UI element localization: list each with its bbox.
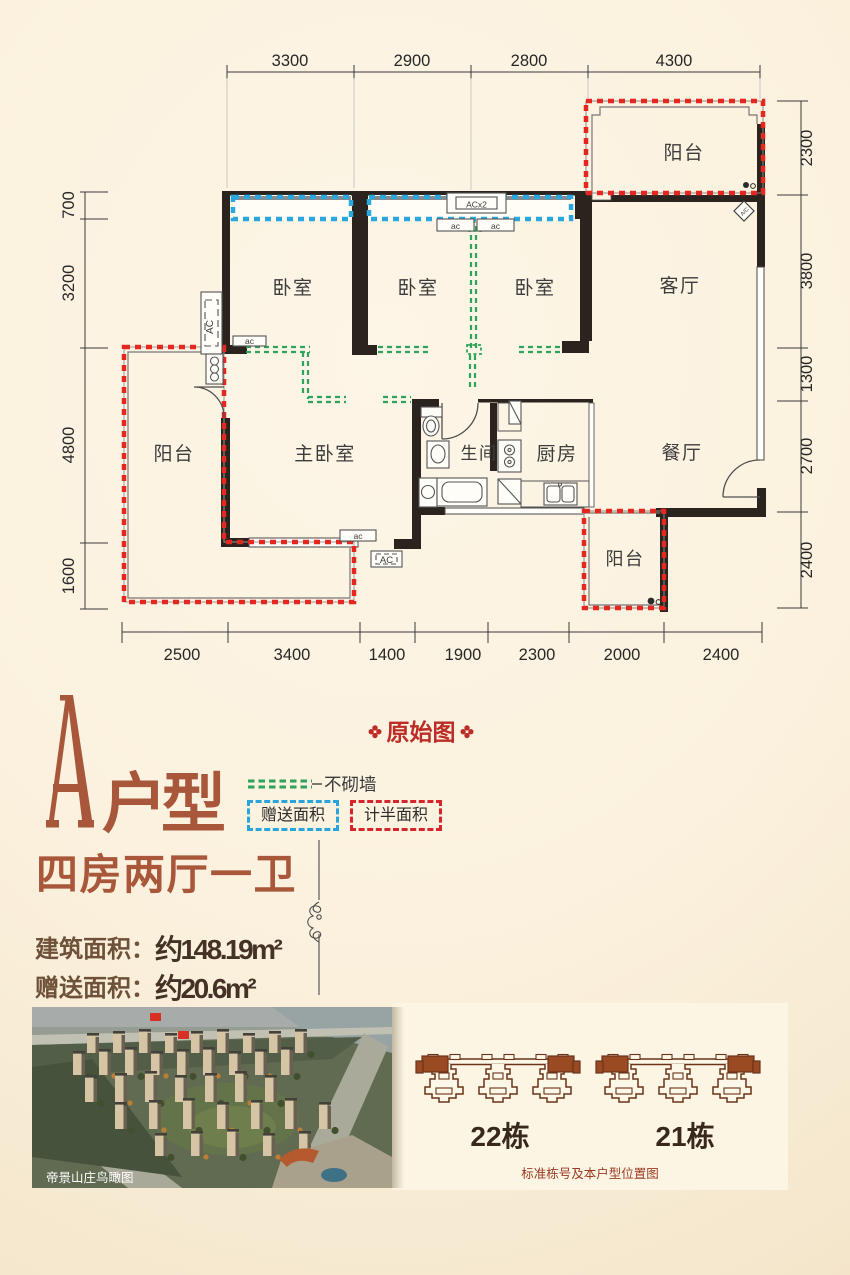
- svg-text:餐厅: 餐厅: [661, 442, 702, 464]
- svg-text:3300: 3300: [272, 52, 309, 70]
- svg-text:阳台: 阳台: [153, 443, 194, 465]
- svg-text:2000: 2000: [604, 646, 641, 664]
- svg-text:1300: 1300: [798, 356, 816, 393]
- svg-text:AC: AC: [205, 320, 216, 334]
- svg-text:2300: 2300: [519, 646, 556, 664]
- svg-text:阳台: 阳台: [606, 549, 645, 569]
- svg-text:1400: 1400: [369, 646, 406, 664]
- svg-text:3400: 3400: [274, 646, 311, 664]
- svg-text:卧室: 卧室: [514, 277, 555, 299]
- svg-text:3200: 3200: [60, 265, 78, 302]
- svg-text:不砌墙: 不砌墙: [324, 775, 377, 795]
- svg-text:2900: 2900: [394, 52, 431, 70]
- svg-text:ACx2: ACx2: [466, 200, 487, 210]
- svg-text:4800: 4800: [60, 427, 78, 464]
- svg-text:2800: 2800: [511, 52, 548, 70]
- svg-text:2500: 2500: [164, 646, 201, 664]
- svg-text:帝景山庄鸟瞰图: 帝景山庄鸟瞰图: [46, 1170, 134, 1185]
- svg-text:3800: 3800: [798, 253, 816, 290]
- svg-text:ac: ac: [491, 221, 501, 231]
- svg-text:2300: 2300: [798, 130, 816, 167]
- svg-text:卧室: 卧室: [397, 277, 438, 299]
- svg-text:主卧室: 主卧室: [294, 443, 356, 465]
- svg-text:2700: 2700: [798, 438, 816, 475]
- svg-text:客厅: 客厅: [659, 275, 700, 297]
- svg-text:ac: ac: [354, 531, 364, 541]
- svg-text:卧室: 卧室: [272, 277, 313, 299]
- svg-text:2400: 2400: [703, 646, 740, 664]
- svg-text:1600: 1600: [60, 558, 78, 595]
- svg-text:ac: ac: [451, 221, 461, 231]
- svg-text:1900: 1900: [445, 646, 482, 664]
- svg-text:AC: AC: [380, 555, 393, 566]
- svg-text:700: 700: [60, 191, 78, 219]
- svg-text:厨房: 厨房: [536, 443, 577, 465]
- svg-text:生间: 生间: [461, 444, 498, 463]
- svg-text:4300: 4300: [656, 52, 693, 70]
- svg-text:原始图: 原始图: [387, 719, 456, 745]
- svg-text:阳台: 阳台: [663, 142, 704, 164]
- svg-text:ac: ac: [245, 336, 255, 346]
- svg-text:2400: 2400: [798, 542, 816, 579]
